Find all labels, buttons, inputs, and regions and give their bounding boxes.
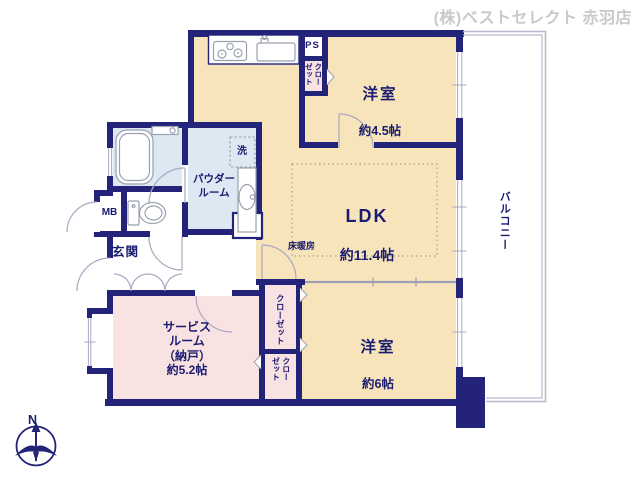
western-room-4-5-name: 洋室 bbox=[310, 86, 450, 105]
label-closet-service: クロー ゼット bbox=[270, 357, 291, 397]
ldk-size: 約11.4帖 bbox=[297, 247, 437, 264]
label-ps: PS bbox=[302, 40, 323, 51]
label-washer: 洗 bbox=[237, 146, 247, 158]
label-mb: MB bbox=[97, 207, 122, 219]
label-ldk: LDK 約11.4帖 bbox=[297, 187, 437, 283]
label-floor-heating: 床暖房 bbox=[288, 241, 315, 252]
floor-plan: (株)ベストセレクト 赤羽店 洋室 約4.5帖 LDK 約11.4帖 床暖房 洋… bbox=[0, 0, 640, 480]
label-balcony: バルコニー bbox=[497, 191, 510, 257]
ldk-name: LDK bbox=[297, 206, 437, 228]
western-room-6-size: 約6帖 bbox=[308, 377, 448, 392]
toilet-icon bbox=[128, 201, 166, 225]
western-room-4-5-size: 約4.5帖 bbox=[310, 124, 450, 139]
label-service-room: サービス ルーム （納戸） 約5.2帖 bbox=[137, 320, 237, 378]
label-closet-kitchen-top: クロー ゼット bbox=[304, 63, 323, 92]
label-western-room-4-5: 洋室 約4.5帖 bbox=[310, 67, 450, 158]
western-room-6-name: 洋室 bbox=[308, 339, 448, 358]
compass-icon bbox=[15, 422, 57, 466]
watermark-store-name: (株)ベストセレクト 赤羽店 bbox=[434, 9, 632, 28]
label-closet-west6: クローゼット bbox=[275, 294, 285, 350]
label-north: N bbox=[28, 413, 37, 428]
label-western-room-6: 洋室 約6帖 bbox=[308, 320, 448, 411]
label-powder-room: パウダー ルーム bbox=[186, 173, 242, 200]
label-entrance: 玄関 bbox=[112, 245, 139, 260]
